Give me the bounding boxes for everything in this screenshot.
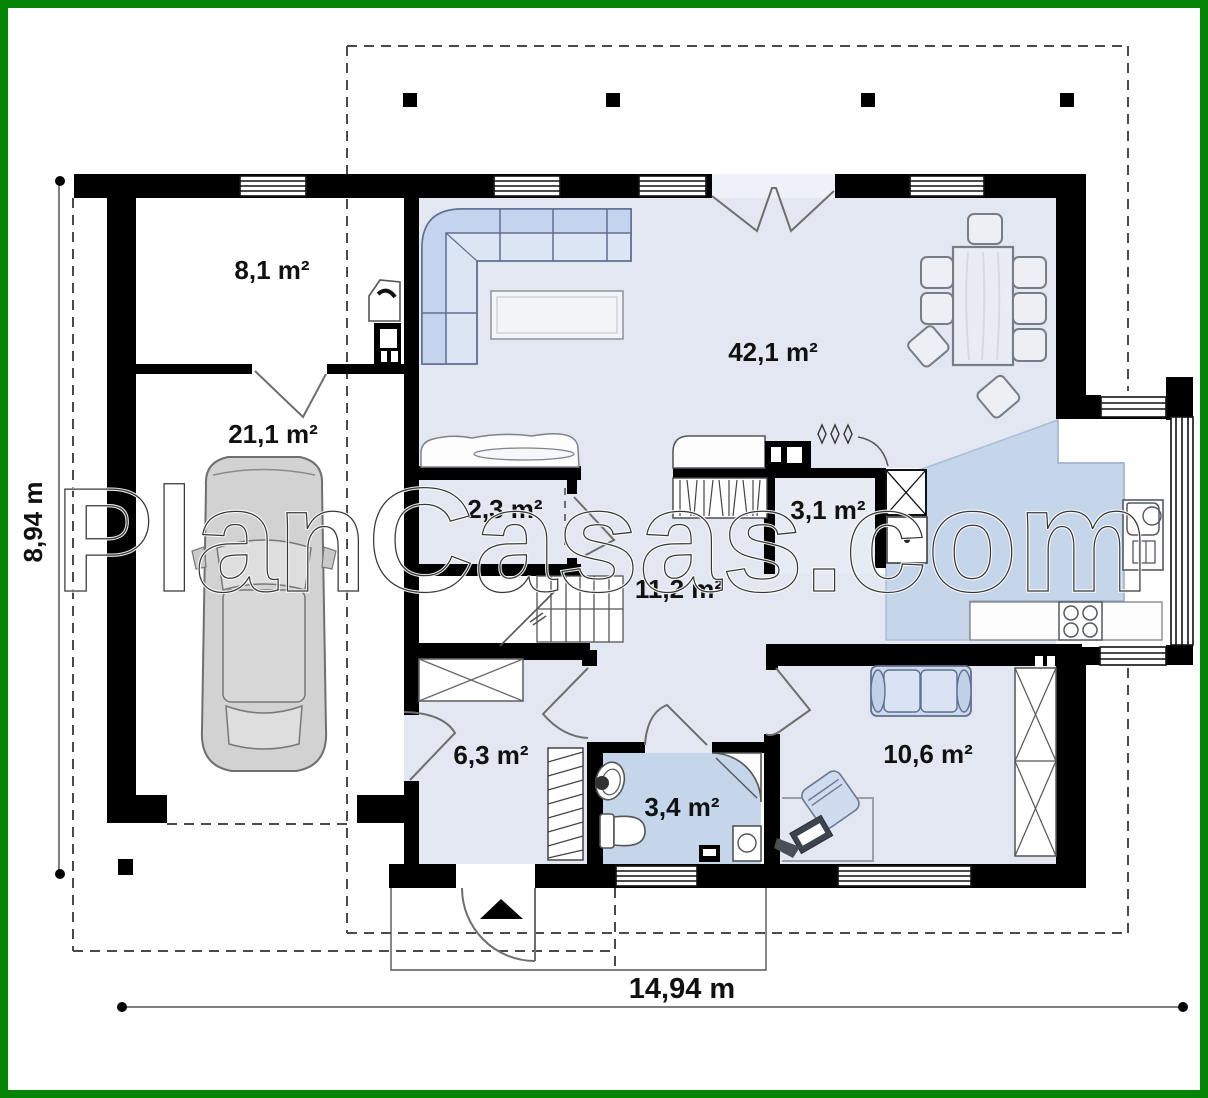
svg-text:10,6 m²: 10,6 m² — [883, 739, 973, 769]
svg-text:3,4 m²: 3,4 m² — [644, 792, 719, 822]
svg-text:6,3 m²: 6,3 m² — [453, 740, 528, 770]
svg-text:42,1 m²: 42,1 m² — [728, 337, 818, 367]
svg-text:21,1 m²: 21,1 m² — [228, 419, 318, 449]
svg-text:PlanCasas.com: PlanCasas.com — [55, 458, 1149, 623]
svg-text:8,94 m: 8,94 m — [18, 482, 48, 563]
svg-text:14,94 m: 14,94 m — [629, 973, 735, 1005]
svg-text:8,1 m²: 8,1 m² — [234, 255, 309, 285]
